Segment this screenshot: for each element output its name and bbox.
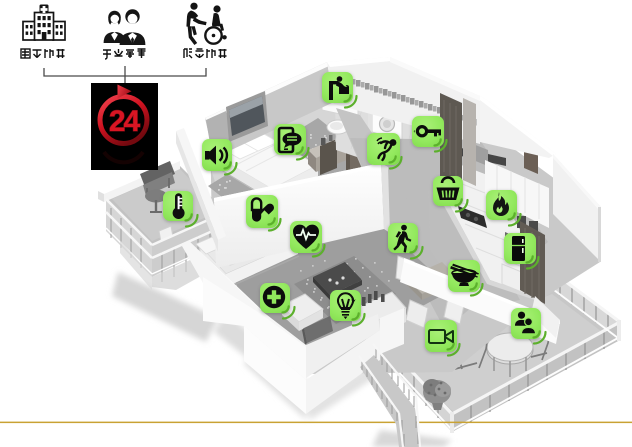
svg-text:24: 24 bbox=[109, 105, 141, 138]
